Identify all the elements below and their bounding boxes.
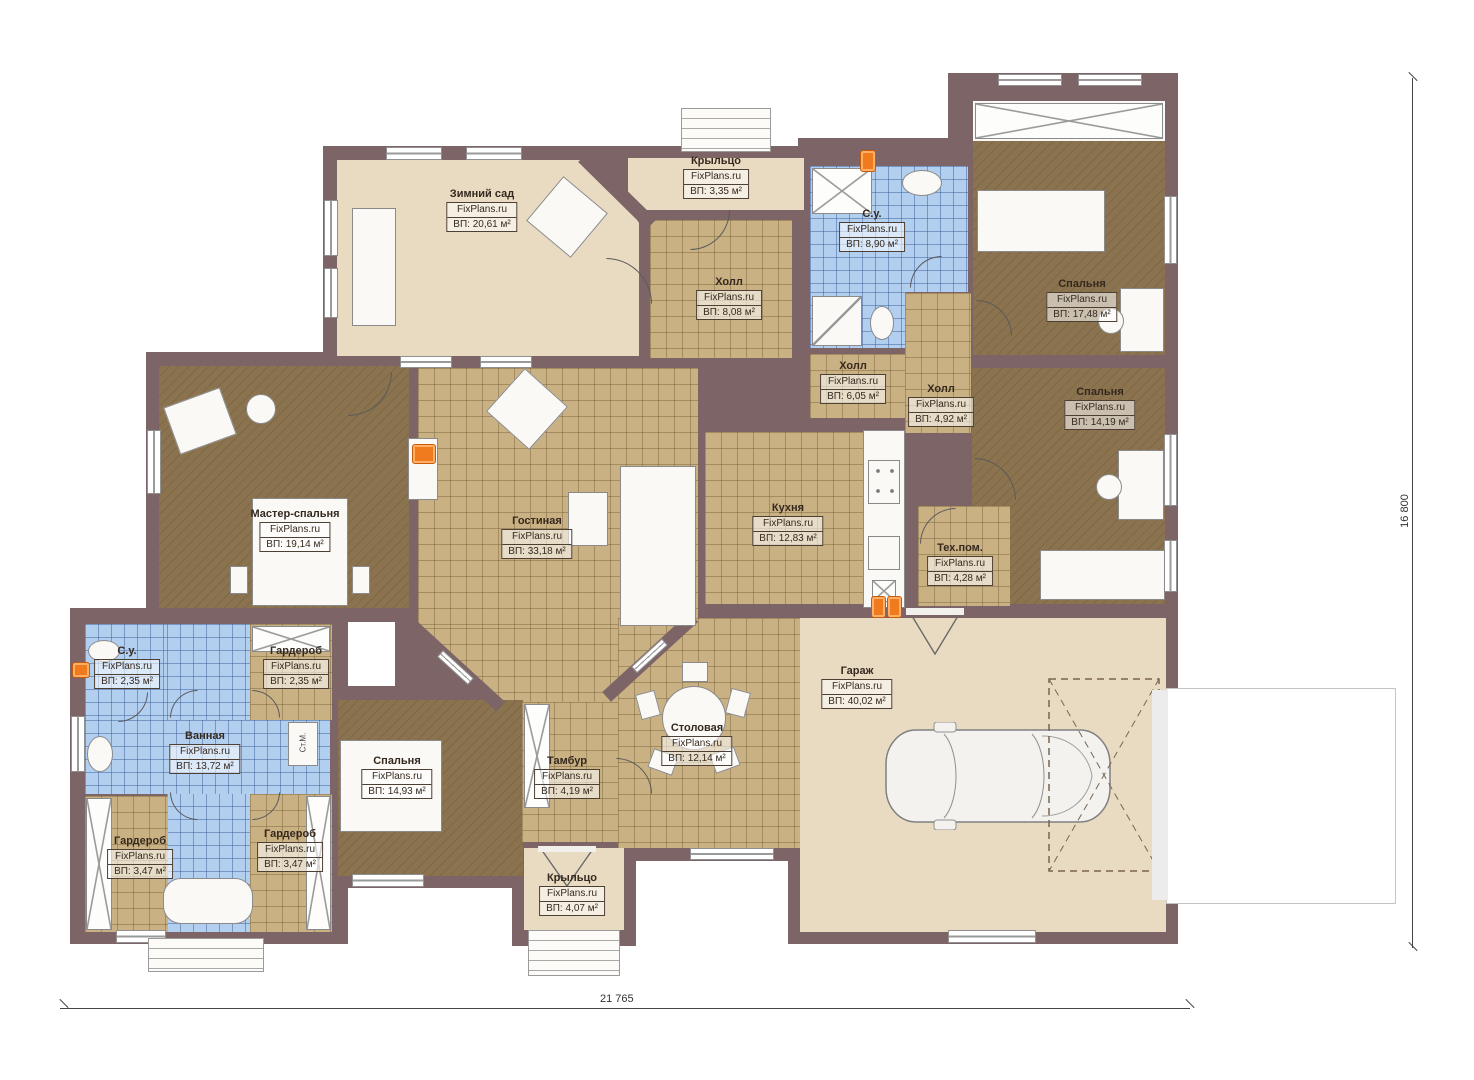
heater-marker	[860, 150, 876, 172]
room-name: Гостиная	[501, 515, 572, 527]
dimension-label-width: 21 765	[600, 993, 634, 1005]
fireplace-fire	[412, 444, 436, 464]
window	[400, 356, 452, 368]
room-label-hall-mid: Холл FixPlans.ru ВП: 6,05 м²	[820, 360, 886, 404]
watermark: FixPlans.ru	[662, 737, 731, 751]
watermark: FixPlans.ru	[447, 203, 516, 217]
desk	[1118, 450, 1164, 520]
window	[352, 874, 424, 887]
watermark: FixPlans.ru	[1065, 401, 1134, 415]
nightstand	[352, 566, 370, 594]
bed	[1040, 550, 1165, 600]
room-area: ВП: 3,47 м²	[108, 865, 172, 878]
watermark: FixPlans.ru	[540, 887, 604, 901]
room-area: ВП: 14,19 м²	[1065, 416, 1134, 429]
room-name: Ванная	[169, 730, 240, 742]
watermark: FixPlans.ru	[928, 557, 992, 571]
room-area: ВП: 4,92 м²	[909, 413, 973, 426]
watermark: FixPlans.ru	[1047, 293, 1116, 307]
room-name: Спальня	[361, 755, 432, 767]
wardrobe-cabinet	[975, 103, 1163, 139]
room-name: Холл	[696, 276, 762, 288]
window	[1078, 74, 1142, 86]
room-label-wardrobe-bottom-right: Гардероб FixPlans.ru ВП: 3,47 м²	[257, 828, 323, 872]
room-name: Гардероб	[257, 828, 323, 840]
watermark: FixPlans.ru	[502, 530, 571, 544]
room-label-bathroom-main: Ванная FixPlans.ru ВП: 13,72 м²	[169, 730, 240, 774]
room-label-kitchen: Кухня FixPlans.ru ВП: 12,83 м²	[752, 502, 823, 546]
porch-steps	[681, 108, 771, 152]
room-label-living-room: Гостиная FixPlans.ru ВП: 33,18 м²	[501, 515, 572, 559]
watermark: FixPlans.ru	[258, 843, 322, 857]
watermark: FixPlans.ru	[264, 660, 328, 674]
room-name: Гараж	[821, 665, 892, 677]
room-label-wardrobe-bottom-left: Гардероб FixPlans.ru ВП: 3,47 м²	[107, 835, 173, 879]
watermark: FixPlans.ru	[362, 770, 431, 784]
room-area: ВП: 20,61 м²	[447, 218, 516, 231]
room-area: ВП: 19,14 м²	[260, 538, 329, 551]
bed	[977, 190, 1105, 252]
room-name: Гардероб	[107, 835, 173, 847]
room-label-bedroom-bottom: Спальня FixPlans.ru ВП: 14,93 м²	[361, 755, 432, 799]
watermark: FixPlans.ru	[753, 517, 822, 531]
heater-marker	[887, 596, 902, 618]
window	[71, 716, 85, 772]
room-area: ВП: 13,72 м²	[170, 760, 239, 773]
room-area: ВП: 4,07 м²	[540, 902, 604, 915]
dimension-tick	[59, 999, 68, 1008]
room-area: ВП: 2,35 м²	[264, 675, 328, 688]
room-label-vestibule: Тамбур FixPlans.ru ВП: 4,19 м²	[534, 755, 600, 799]
window	[324, 268, 338, 318]
sofa	[620, 466, 696, 626]
room-label-tech-room: Тех.пом. FixPlans.ru ВП: 4,28 м²	[927, 542, 993, 586]
room-area: ВП: 12,83 м²	[753, 532, 822, 545]
window	[1164, 540, 1177, 592]
room-area: ВП: 17,48 м²	[1047, 308, 1116, 321]
dimension-line-right	[1412, 78, 1413, 948]
window	[386, 147, 442, 160]
floor-plan: Ст.М. Зимний сад	[0, 0, 1474, 1080]
dimension-line-bottom	[60, 1008, 1190, 1009]
room-name: Столовая	[661, 722, 732, 734]
room-name: Холл	[820, 360, 886, 372]
window	[998, 74, 1062, 86]
watermark: FixPlans.ru	[108, 850, 172, 864]
watermark: FixPlans.ru	[822, 680, 891, 694]
room-name: Зимний сад	[446, 188, 517, 200]
side-table	[246, 394, 276, 424]
watermark: FixPlans.ru	[535, 770, 599, 784]
bay-steps	[148, 938, 264, 972]
window	[324, 200, 338, 256]
window	[480, 356, 532, 368]
room-area: ВП: 4,28 м²	[928, 572, 992, 585]
chair	[682, 662, 708, 682]
window	[948, 930, 1036, 943]
room-label-bathroom-top: С.у. FixPlans.ru ВП: 8,90 м²	[839, 208, 905, 252]
room-name: Спальня	[1064, 386, 1135, 398]
room-label-porch-top: Крыльцо FixPlans.ru ВП: 3,35 м²	[683, 155, 749, 199]
watermark: FixPlans.ru	[95, 660, 159, 674]
washer-label: Ст.М.	[299, 728, 308, 758]
garage-door-zone	[1048, 678, 1160, 872]
window	[147, 430, 161, 494]
room-label-wardrobe-top: Гардероб FixPlans.ru ВП: 2,35 м²	[263, 645, 329, 689]
watermark: FixPlans.ru	[909, 398, 973, 412]
room-label-hall-small: Холл FixPlans.ru ВП: 4,92 м²	[908, 383, 974, 427]
room-name: Кухня	[752, 502, 823, 514]
window	[466, 147, 522, 160]
garage-apron	[1166, 688, 1396, 904]
chair	[1096, 474, 1122, 500]
kitchen-sink	[868, 536, 900, 570]
watermark: FixPlans.ru	[684, 170, 748, 184]
bathtub	[163, 878, 253, 924]
toilet	[870, 306, 894, 340]
watermark: FixPlans.ru	[697, 291, 761, 305]
sink	[87, 736, 113, 772]
garage-opening	[1152, 690, 1168, 900]
watermark: FixPlans.ru	[170, 745, 239, 759]
room-area: ВП: 14,93 м²	[362, 785, 431, 798]
window	[1164, 434, 1177, 506]
desk	[1120, 288, 1164, 352]
room-name: С.у.	[839, 208, 905, 220]
dimension-tick	[1408, 72, 1417, 81]
window	[690, 848, 774, 860]
room-area: ВП: 12,14 м²	[662, 752, 731, 765]
room-name: Тех.пом.	[927, 542, 993, 554]
room-name: Холл	[908, 383, 974, 395]
room-area: ВП: 40,02 м²	[822, 695, 891, 708]
room-label-dining-room: Столовая FixPlans.ru ВП: 12,14 м²	[661, 722, 732, 766]
room-name: Крыльцо	[683, 155, 749, 167]
room-name: С.у.	[94, 645, 160, 657]
room-area: ВП: 6,05 м²	[821, 390, 885, 403]
room-name: Спальня	[1046, 278, 1117, 290]
sink	[902, 170, 942, 196]
stove	[868, 460, 900, 504]
door-swing	[906, 608, 964, 658]
room-label-hall-top: Холл FixPlans.ru ВП: 8,08 м²	[696, 276, 762, 320]
room-label-wc-left: С.у. FixPlans.ru ВП: 2,35 м²	[94, 645, 160, 689]
room-area: ВП: 33,18 м²	[502, 545, 571, 558]
watermark: FixPlans.ru	[260, 523, 329, 537]
room-area: ВП: 3,35 м²	[684, 185, 748, 198]
room-label-master-bedroom: Мастер-спальня FixPlans.ru ВП: 19,14 м²	[250, 508, 339, 552]
room-area: ВП: 2,35 м²	[95, 675, 159, 688]
room-area: ВП: 8,08 м²	[697, 306, 761, 319]
window	[1164, 196, 1177, 264]
room-area: ВП: 3,47 м²	[258, 858, 322, 871]
room-name: Гардероб	[263, 645, 329, 657]
room-name: Крыльцо	[539, 872, 605, 884]
dimension-tick	[1408, 942, 1417, 951]
room-area: ВП: 8,90 м²	[840, 238, 904, 251]
dimension-tick	[1185, 999, 1194, 1008]
room-label-winter-garden: Зимний сад FixPlans.ru ВП: 20,61 м²	[446, 188, 517, 232]
room-area: ВП: 4,19 м²	[535, 785, 599, 798]
room-label-porch-bottom: Крыльцо FixPlans.ru ВП: 4,07 м²	[539, 872, 605, 916]
room-label-bedroom-right: Спальня FixPlans.ru ВП: 14,19 м²	[1064, 386, 1135, 430]
watermark: FixPlans.ru	[821, 375, 885, 389]
sofa	[352, 208, 396, 326]
porch-steps	[528, 930, 620, 976]
watermark: FixPlans.ru	[840, 223, 904, 237]
room-name: Мастер-спальня	[250, 508, 339, 520]
room-label-bedroom-top-right: Спальня FixPlans.ru ВП: 17,48 м²	[1046, 278, 1117, 322]
room-label-garage: Гараж FixPlans.ru ВП: 40,02 м²	[821, 665, 892, 709]
nightstand	[230, 566, 248, 594]
heater-marker	[72, 662, 90, 678]
dimension-label-height: 16 800	[1399, 494, 1411, 528]
heater-marker	[871, 596, 886, 618]
coffee-table	[568, 492, 608, 546]
room-name: Тамбур	[534, 755, 600, 767]
shower	[812, 296, 862, 346]
